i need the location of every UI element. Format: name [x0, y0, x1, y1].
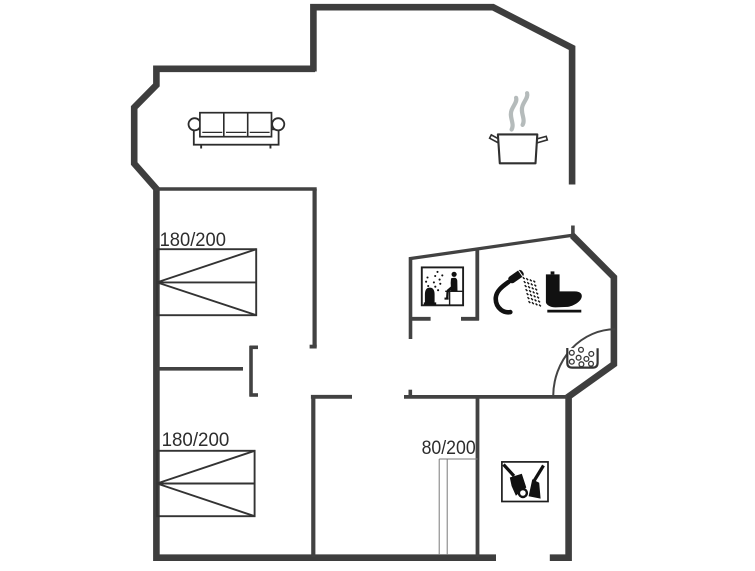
- svg-text:80/200: 80/200: [422, 438, 476, 459]
- svg-text:180/200: 180/200: [160, 229, 226, 251]
- svg-text:180/200: 180/200: [162, 429, 230, 451]
